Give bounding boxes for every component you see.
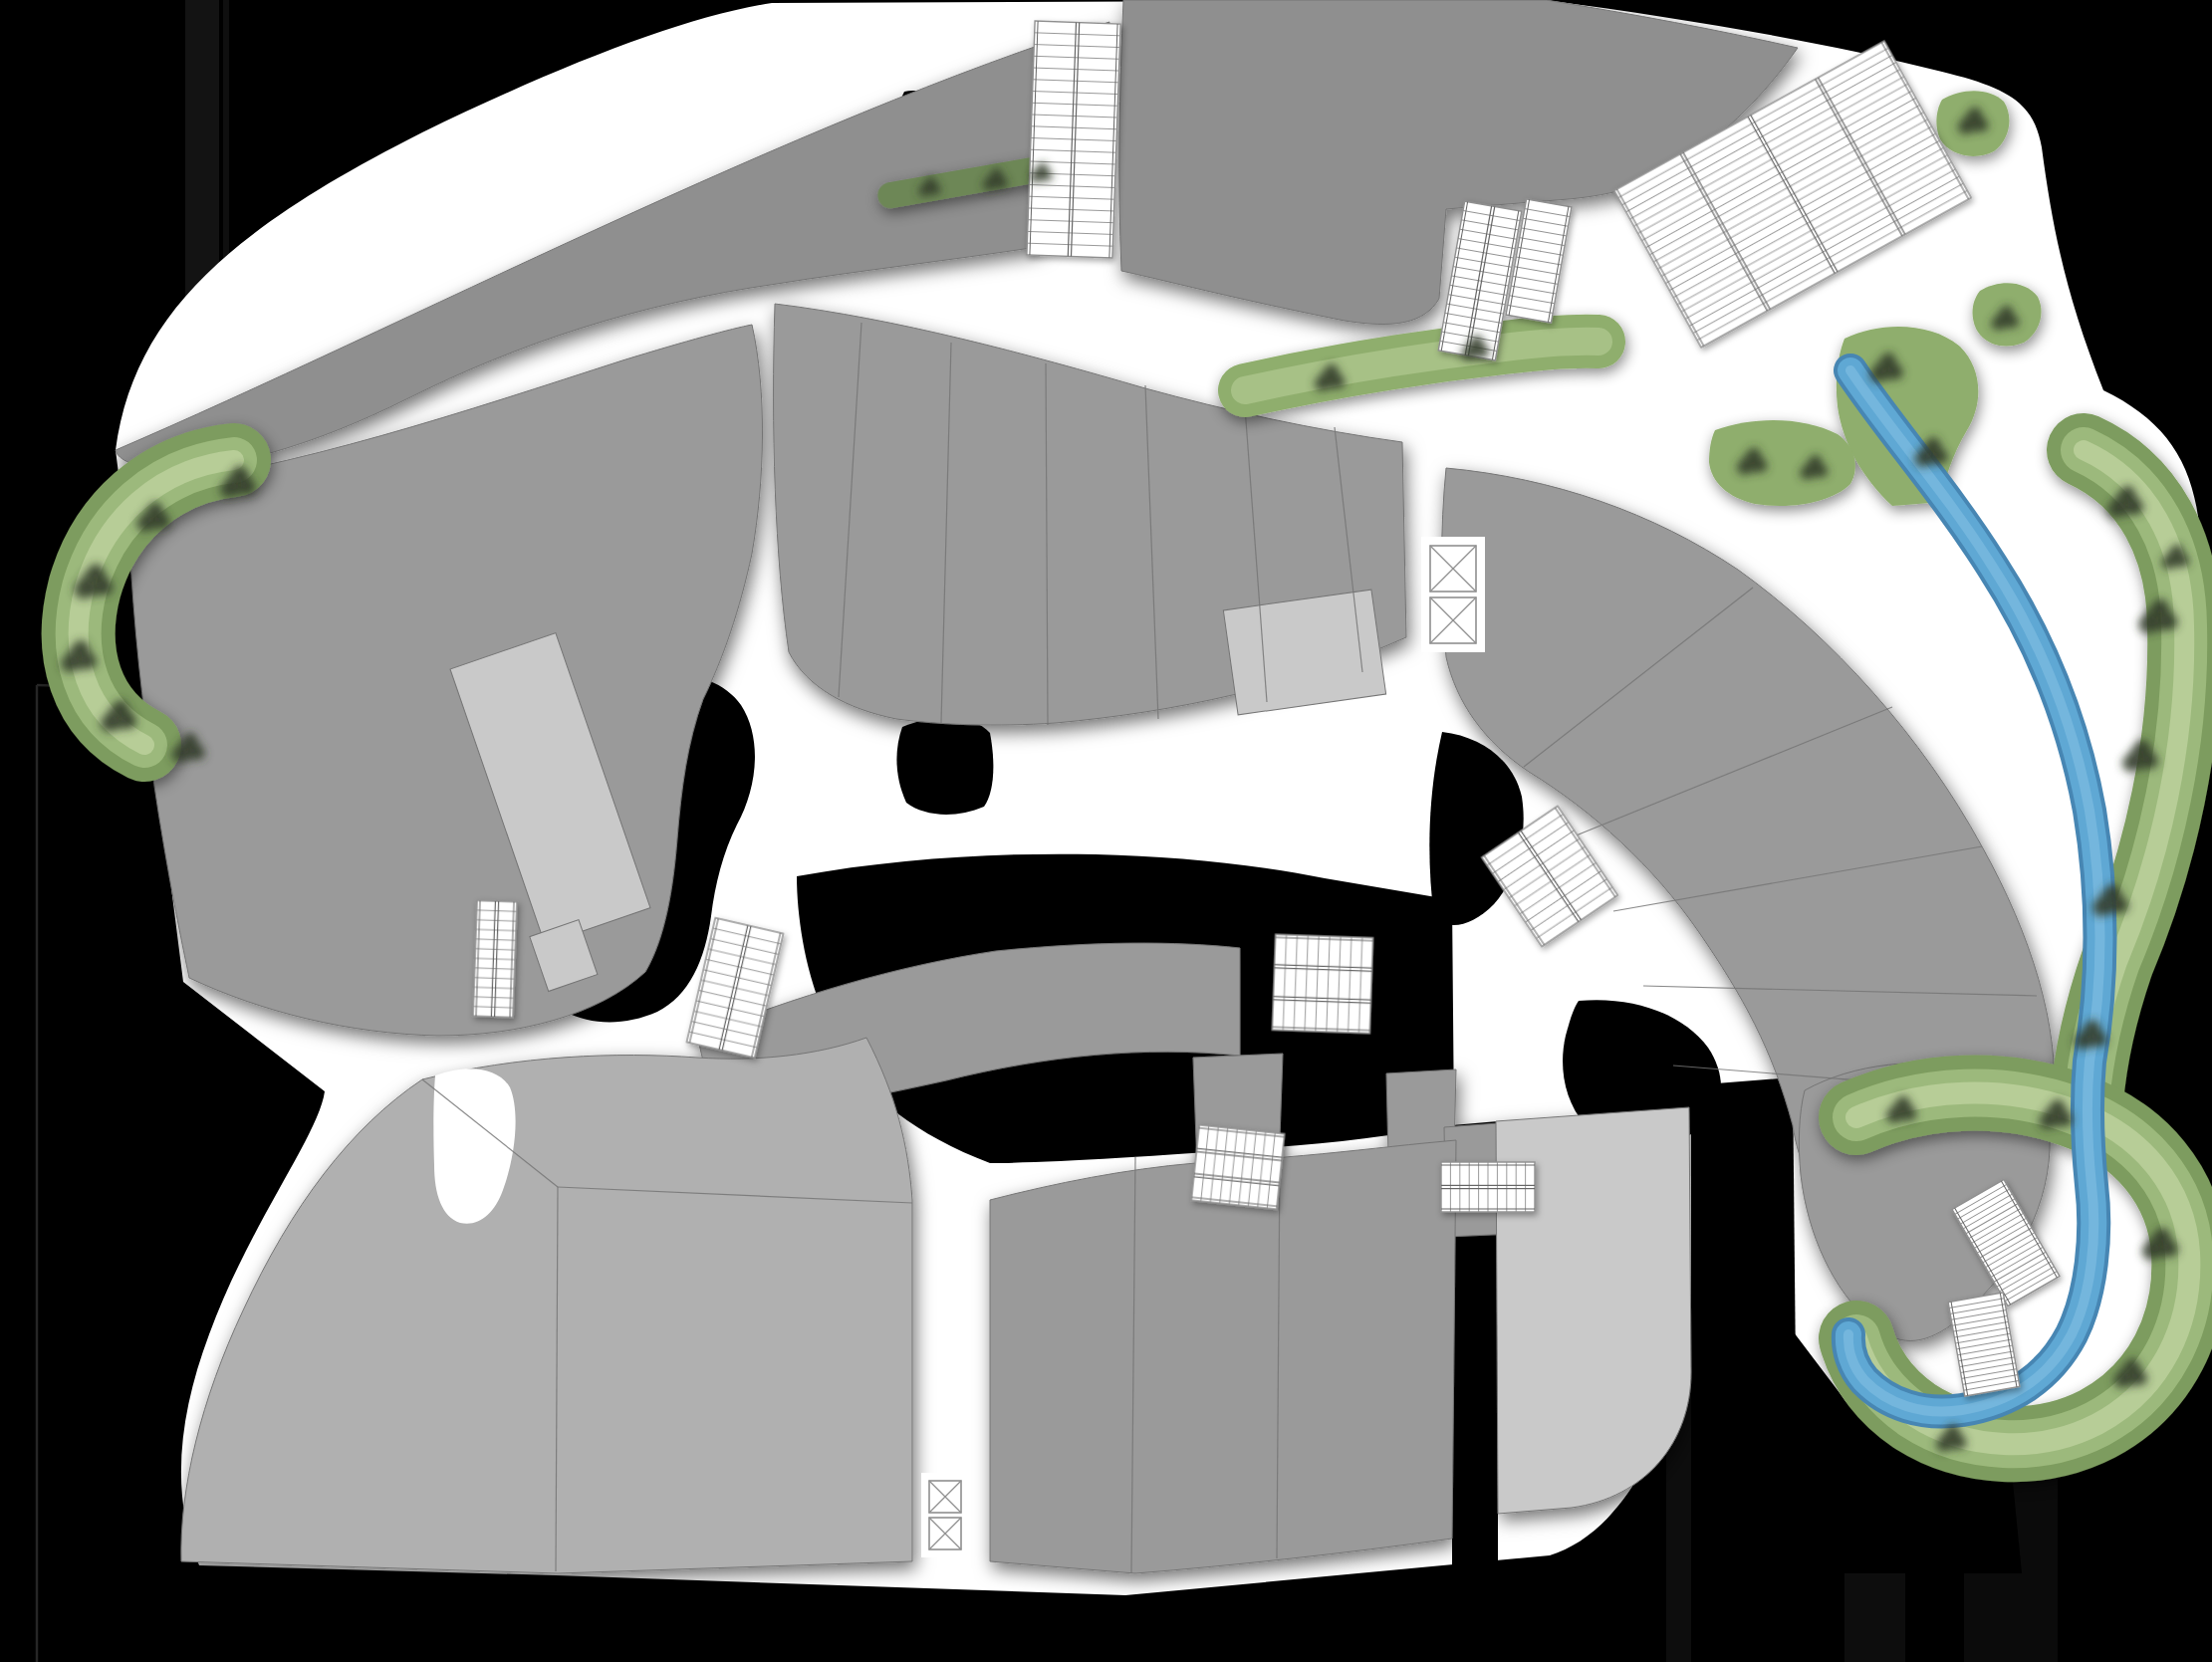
circle-shape [918, 185, 929, 196]
circle-shape [74, 580, 94, 599]
stair-symbol [1191, 1125, 1284, 1210]
circle-shape [61, 654, 79, 672]
circle-shape [101, 714, 119, 732]
site-plan-svg [0, 0, 2212, 1662]
circle-shape [191, 746, 205, 760]
circle-shape [2052, 1099, 2065, 1112]
building-south-east [990, 1140, 1456, 1573]
circle-shape [241, 480, 257, 496]
circle-shape [1954, 1436, 1967, 1449]
circle-shape [1737, 460, 1752, 475]
circle-shape [2113, 898, 2129, 914]
circle-shape [2155, 1227, 2169, 1241]
elevator-symbol [921, 1473, 969, 1557]
circle-shape [1914, 451, 1931, 468]
centre-light-block [1223, 590, 1385, 715]
circle-shape [184, 733, 197, 746]
planter-plaza [1709, 420, 1855, 506]
circle-shape [1817, 466, 1829, 478]
circle-shape [233, 465, 247, 479]
circle-shape [1886, 1108, 1901, 1123]
circle-shape [2178, 556, 2190, 568]
circle-shape [1882, 353, 1895, 365]
circle-shape [2126, 1358, 2139, 1371]
circle-shape [2120, 485, 2134, 499]
circle-shape [1811, 455, 1822, 466]
circle-shape [1461, 347, 1475, 360]
void-southeast-column [1691, 1077, 1799, 1662]
circle-shape [74, 639, 88, 653]
circle-shape [2113, 1372, 2130, 1389]
circle-shape [1991, 317, 2005, 331]
circle-shape [2092, 898, 2110, 916]
circle-shape [136, 516, 153, 533]
circle-shape [2163, 1242, 2179, 1258]
circle-shape [2133, 1371, 2147, 1385]
circle-shape [1904, 1107, 1917, 1120]
circle-shape [2128, 500, 2144, 516]
circle-shape [220, 480, 238, 498]
circle-shape [156, 515, 170, 529]
circle-shape [114, 699, 127, 713]
stair-symbol [1272, 934, 1372, 1033]
circle-shape [1755, 459, 1768, 472]
circle-shape [2105, 883, 2119, 897]
circle-shape [149, 502, 162, 515]
circle-shape [2135, 739, 2149, 753]
circle-shape [1936, 1437, 1951, 1452]
elevator-symbol [1421, 537, 1485, 652]
circle-shape [2161, 614, 2178, 631]
circle-shape [2074, 1034, 2090, 1051]
circle-shape [1326, 363, 1338, 375]
circle-shape [171, 747, 188, 764]
circle-shape [122, 714, 137, 730]
circle-shape [2059, 1112, 2073, 1126]
circle-shape [2107, 500, 2125, 518]
circle-shape [1472, 336, 1483, 347]
circle-shape [97, 580, 114, 596]
circle-shape [1043, 171, 1053, 181]
circle-shape [1869, 366, 1886, 383]
circle-shape [983, 178, 996, 191]
rect-shape [1272, 934, 1372, 1033]
circle-shape [2143, 754, 2159, 770]
stair-symbol [473, 900, 517, 1017]
circle-shape [992, 168, 1002, 178]
circle-shape [1315, 376, 1330, 391]
circle-shape [1030, 171, 1041, 182]
circle-shape [1333, 375, 1346, 388]
circle-shape [82, 654, 98, 670]
circle-shape [1947, 1424, 1959, 1436]
circle-shape [2122, 754, 2140, 772]
circle-shape [2142, 1242, 2160, 1260]
circle-shape [1478, 347, 1490, 358]
circle-shape [1038, 162, 1047, 171]
circle-shape [2002, 306, 2013, 317]
stair-symbol [1027, 21, 1120, 258]
circle-shape [2153, 598, 2168, 613]
circle-shape [2093, 1033, 2107, 1047]
circle-shape [1748, 447, 1760, 459]
circle-shape [89, 564, 104, 579]
circle-shape [1934, 450, 1948, 464]
circle-shape [2172, 545, 2183, 556]
circle-shape [1889, 365, 1903, 379]
rect-shape [1191, 1125, 1284, 1210]
void-centre-blob [896, 718, 993, 815]
circle-shape [2138, 614, 2158, 634]
circle-shape [997, 178, 1008, 189]
circle-shape [1969, 107, 1981, 119]
circle-shape [1927, 437, 1940, 450]
circle-shape [1958, 119, 1973, 134]
circle-shape [1976, 119, 1989, 131]
circle-shape [2039, 1113, 2056, 1130]
circle-shape [931, 185, 941, 195]
g-shape [1223, 590, 1385, 715]
circle-shape [926, 176, 935, 185]
circle-shape [2161, 556, 2175, 570]
floor-plan [0, 0, 2212, 1662]
circle-shape [1800, 466, 1814, 480]
circle-shape [2087, 1020, 2099, 1033]
circle-shape [1897, 1095, 1909, 1107]
stair-symbol [1441, 1162, 1535, 1212]
circle-shape [2008, 317, 2020, 329]
